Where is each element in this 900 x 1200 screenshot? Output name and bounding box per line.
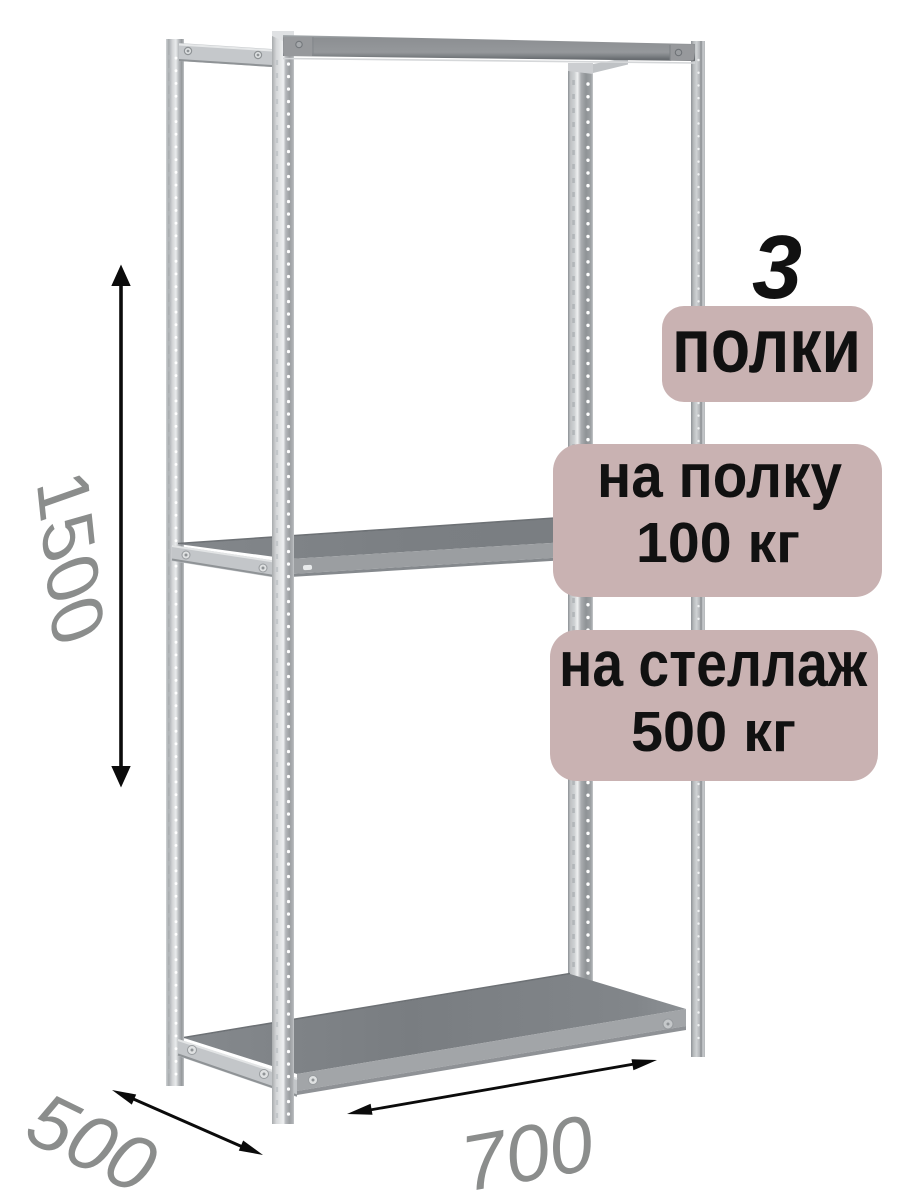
svg-text:полки: полки: [672, 303, 861, 389]
svg-text:на полку: на полку: [597, 442, 842, 511]
svg-text:500 кг: 500 кг: [631, 700, 796, 764]
svg-text:на стеллаж: на стеллаж: [559, 628, 868, 700]
svg-text:100 кг: 100 кг: [636, 511, 800, 575]
